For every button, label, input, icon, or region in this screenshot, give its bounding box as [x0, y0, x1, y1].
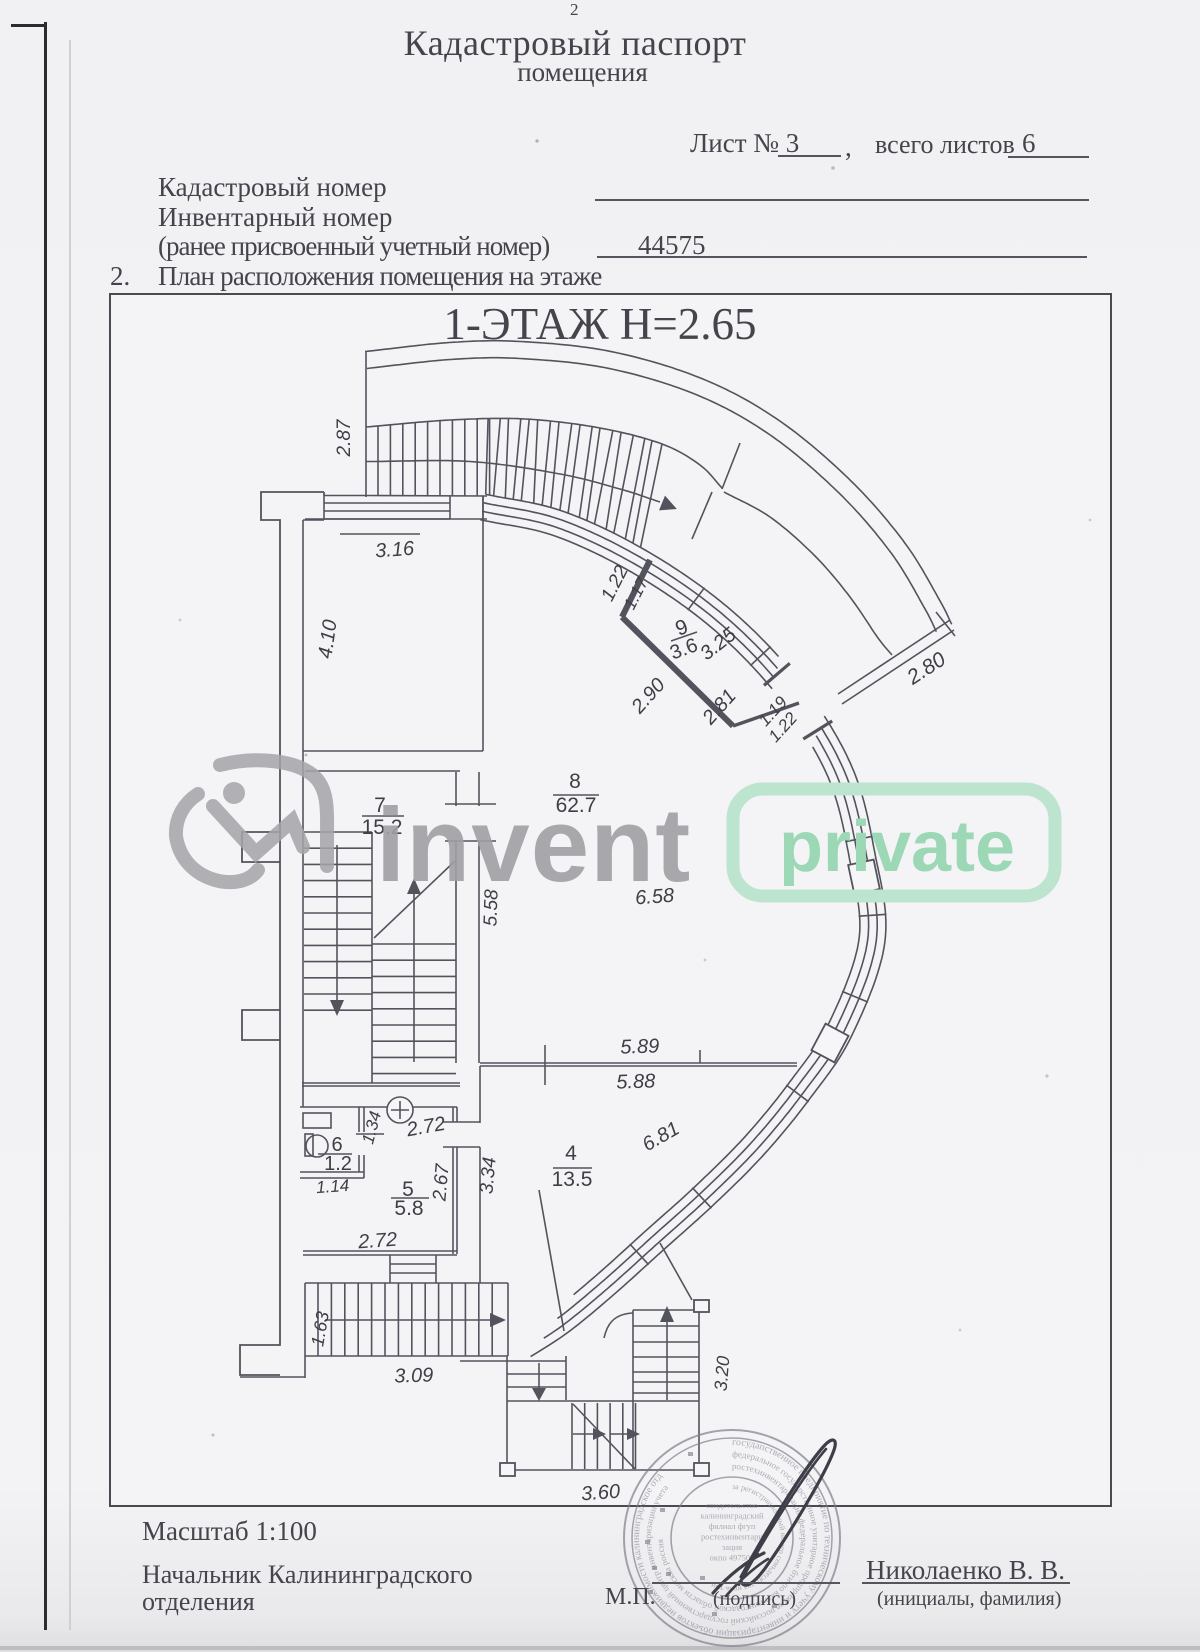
svg-text:2.80: 2.80 [902, 648, 950, 690]
svg-text:1.2: 1.2 [324, 1153, 352, 1175]
svg-text:филиал фгуп: филиал фгуп [709, 1521, 756, 1531]
svg-text:invent: invent [376, 787, 691, 904]
svg-text:3.16: 3.16 [374, 538, 415, 563]
svg-text:2.87: 2.87 [334, 418, 355, 457]
svg-text:3.60: 3.60 [580, 1481, 620, 1506]
svg-text:4.10: 4.10 [314, 618, 341, 660]
svg-text:6.81: 6.81 [639, 1118, 684, 1157]
svg-text:1.63: 1.63 [307, 1310, 333, 1348]
svg-text:13.5: 13.5 [552, 1168, 593, 1191]
svg-text:1.14: 1.14 [315, 1176, 349, 1197]
svg-text:3.20: 3.20 [711, 1355, 734, 1392]
svg-text:5.89: 5.89 [620, 1035, 660, 1058]
svg-text:2.81: 2.81 [698, 685, 741, 729]
svg-text:3.09: 3.09 [394, 1364, 434, 1387]
svg-text:зация: зация [722, 1542, 742, 1552]
svg-text:private: private [779, 807, 1015, 887]
svg-text:4: 4 [565, 1142, 577, 1165]
svg-text:5.88: 5.88 [616, 1070, 656, 1093]
svg-text:1.34: 1.34 [358, 1109, 385, 1146]
svg-text:5.8: 5.8 [394, 1197, 423, 1220]
svg-text:свидетельство: свидетельство [706, 1500, 758, 1510]
svg-text:2.90: 2.90 [627, 674, 670, 718]
svg-text:2.67: 2.67 [429, 1162, 453, 1203]
svg-text:3.34: 3.34 [476, 1156, 500, 1195]
svg-text:2.72: 2.72 [356, 1229, 397, 1254]
svg-text:ростехинвентари: ростехинвентари [701, 1532, 763, 1542]
svg-text:3.6: 3.6 [667, 634, 701, 664]
svg-text:3.25: 3.25 [696, 623, 741, 665]
svg-text:калининградский: калининградский [700, 1511, 764, 1521]
